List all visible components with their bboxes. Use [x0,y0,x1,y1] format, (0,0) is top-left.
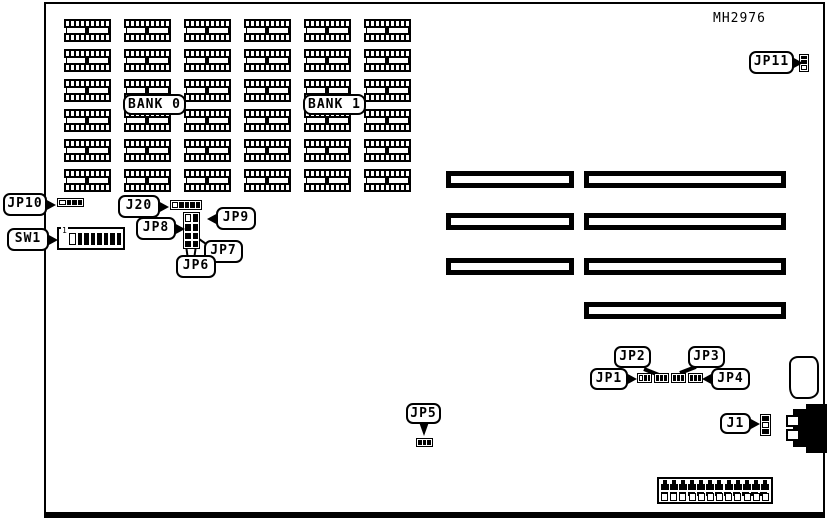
jp2-label: JP2 [619,349,645,364]
chip-body-bar [247,58,265,63]
expansion-slot [446,258,574,275]
pin-cell [59,200,66,205]
chip-notch-icon [304,148,306,153]
chip-notch-icon [184,178,186,183]
jp1-callout: JP1 [590,368,628,390]
chip-notch-icon [364,58,366,63]
power-cell [716,493,723,501]
chip-body-bar [247,178,265,183]
pin-cell [185,233,191,239]
chip-body-bar [149,58,168,63]
power-pin [670,480,678,491]
sw1-switch-cell [69,233,76,245]
chip-pin-row-icon [246,95,289,100]
memory-chip [184,19,231,42]
chip-body-bar [269,148,288,153]
chip-pin-row-icon [126,185,169,190]
power-pin [706,480,714,491]
memory-chip [124,19,171,42]
chip-body-bar [269,178,288,183]
chip-notch-icon [124,58,126,63]
chip-notch-icon [304,118,306,123]
chip-body-bar [269,88,288,93]
chip-body-bar [367,178,385,183]
chip-body-bar [67,28,85,33]
chip-notch-icon [124,148,126,153]
chip-body-bar [209,88,228,93]
chip-body-bar [149,88,168,93]
chip-body-bar [187,88,205,93]
chip-notch-icon [64,58,66,63]
chip-body-bar [89,178,108,183]
memory-chip [64,169,111,192]
power-pin [743,480,751,491]
chip-notch-icon [64,148,66,153]
chip-body-bar [247,118,265,123]
chip-body-bar [67,178,85,183]
j20-callout: J20 [118,195,160,218]
sw1-pointer-icon [47,234,58,246]
motherboard-diagram: BANK 0 BANK 1 MH2976 JP10 SW1 J20 JP8 JP… [0,0,827,520]
expansion-slot [446,213,574,230]
memory-chip [64,19,111,42]
pin-cell [185,224,191,230]
chip-body-bar [367,118,385,123]
memory-chip [304,139,351,162]
memory-chip [244,79,291,102]
pin-cell [193,224,199,230]
pin-cell [762,429,769,434]
chip-pin-row-icon [126,141,169,146]
pin-cell [656,375,659,381]
chip-pin-row-icon [66,111,109,116]
sw1-switch-cell [117,233,122,245]
chip-pin-row-icon [66,155,109,160]
memory-chip [304,49,351,72]
chip-notch-icon [184,58,186,63]
chip-pin-row-icon [246,155,289,160]
power-cell [670,493,677,501]
pin-cell [67,200,72,205]
jp10-header [57,198,84,207]
chip-body-bar [67,148,85,153]
chip-pin-row-icon [366,171,409,176]
chip-pin-row-icon [66,185,109,190]
sw1-switch-cell [104,233,109,245]
memory-chip [364,49,411,72]
jp8-callout: JP8 [136,217,176,240]
chip-notch-icon [364,148,366,153]
memory-chip [64,109,111,132]
chip-notch-icon [64,118,66,123]
memory-chip [364,109,411,132]
jp4-callout: JP4 [711,368,750,390]
jp9-label: JP9 [223,210,249,225]
jp1-label: JP1 [596,371,622,386]
chip-pin-row-icon [366,51,409,56]
chip-notch-icon [304,28,306,33]
j1-pointer-icon [749,418,760,430]
chip-pin-row-icon [126,35,169,40]
chip-notch-icon [304,58,306,63]
pin-cell [190,202,194,208]
chip-body-bar [89,148,108,153]
pin-cell [72,200,77,205]
chip-body-bar [209,58,228,63]
chip-notch-icon [244,118,246,123]
power-cell [679,493,686,501]
jp1-jumper [637,373,652,383]
keyboard-din-connector [806,404,827,453]
chip-pin-row-icon [126,21,169,26]
chip-body-bar [247,88,265,93]
chip-body-bar [127,178,145,183]
memory-chip [184,49,231,72]
power-pin [752,480,760,491]
expansion-slot [584,302,786,319]
jp11-callout: JP11 [749,51,794,74]
power-pin [725,480,733,491]
memory-chip [64,49,111,72]
chip-body-bar [389,148,408,153]
chip-pin-row-icon [126,125,169,130]
chip-body-bar [329,58,348,63]
chip-notch-icon [124,28,126,33]
chip-body-bar [307,148,325,153]
chip-body-bar [329,88,348,93]
chip-pin-row-icon [186,155,229,160]
power-pin [688,480,696,491]
power-cell [707,493,714,501]
power-pin [697,480,705,491]
power-cell [661,493,668,501]
power-cell [734,493,741,501]
chip-body-bar [307,28,325,33]
memory-chip [124,49,171,72]
chip-pin-row-icon [66,21,109,26]
chip-pin-row-icon [306,81,349,86]
memory-chip [184,139,231,162]
chip-body-bar [329,28,348,33]
chip-pin-row-icon [366,125,409,130]
chip-pin-row-icon [66,35,109,40]
chip-pin-row-icon [246,111,289,116]
chip-pin-row-icon [306,51,349,56]
jp2-jumper [654,373,669,383]
chip-pin-row-icon [186,81,229,86]
chip-pin-row-icon [186,65,229,70]
chip-pin-row-icon [246,125,289,130]
jp5-callout: JP5 [406,403,441,424]
chip-pin-row-icon [366,185,409,190]
chip-body-bar [269,118,288,123]
pin-cell [193,241,199,247]
memory-chip [124,169,171,192]
sw1-dip-switch: 1 [57,227,125,250]
j1-header [760,414,771,436]
chip-body-bar [307,88,325,93]
chip-body-bar [367,28,385,33]
power-pin [761,480,769,491]
memory-chip [364,169,411,192]
power-cell [762,493,769,501]
j1-label: J1 [727,416,745,431]
j20-header [170,200,202,210]
chip-pin-row-icon [246,81,289,86]
chip-body-bar [187,148,205,153]
chip-pin-row-icon [186,95,229,100]
jp6-callout: JP6 [176,255,216,278]
chip-pin-row-icon [126,51,169,56]
pin-cell [660,375,663,381]
power-connector-cell-row [661,493,769,501]
power-pin [679,480,687,491]
jp3-label: JP3 [693,349,719,364]
pin-cell [648,375,650,381]
sw1-switch-cell [84,233,89,245]
keyboard-din-pin [786,429,800,441]
bank0-label: BANK 0 [123,94,186,115]
chip-pin-row-icon [306,185,349,190]
chip-notch-icon [364,28,366,33]
chip-pin-row-icon [186,141,229,146]
expansion-slot [584,213,786,230]
jp10-label: JP10 [7,196,42,211]
chip-body-bar [209,178,228,183]
chip-pin-row-icon [366,95,409,100]
chip-pin-row-icon [366,21,409,26]
bank1-label: BANK 1 [303,94,366,115]
power-pin [734,480,742,491]
chip-body-bar [127,148,145,153]
chip-notch-icon [244,178,246,183]
chip-pin-row-icon [66,95,109,100]
jp4-jumper [688,373,703,383]
sw1-switch-cell [78,233,83,245]
j20-pointer-icon [158,201,169,213]
chip-body-bar [127,58,145,63]
memory-chip [244,19,291,42]
chip-body-bar [209,148,228,153]
memory-chip [244,49,291,72]
pin-cell [694,375,697,381]
expansion-slot [446,171,574,188]
jp7-label: JP7 [210,243,236,258]
pin-cell [172,202,178,208]
pin-cell [644,375,646,381]
chip-body-bar [187,178,205,183]
pin-cell [193,233,199,239]
chip-body-bar [67,118,85,123]
chip-pin-row-icon [246,141,289,146]
jp1-pointer-icon [626,373,637,385]
chip-body-bar [209,118,228,123]
jp4-label: JP4 [717,371,743,386]
expansion-slot [584,258,786,275]
chip-pin-row-icon [306,171,349,176]
memory-chip [304,19,351,42]
power-pin [661,480,669,491]
sw1-index-label: 1 [61,227,68,235]
chip-notch-icon [124,118,126,123]
chip-pin-row-icon [186,171,229,176]
sw1-label: SW1 [15,231,41,246]
memory-chip [184,79,231,102]
chip-pin-row-icon [246,185,289,190]
chip-notch-icon [184,88,186,93]
chip-pin-row-icon [66,81,109,86]
memory-chip [364,19,411,42]
chip-body-bar [269,58,288,63]
chip-pin-row-icon [126,81,169,86]
chip-body-bar [389,28,408,33]
j20-label: J20 [126,198,152,213]
pin-cell [418,440,422,445]
power-cell [744,493,751,501]
jp9-pointer-icon [207,213,218,225]
chip-pin-row-icon [366,65,409,70]
pin-cell [664,375,667,381]
chip-pin-row-icon [306,125,349,130]
chip-notch-icon [304,178,306,183]
memory-chip [244,109,291,132]
memory-chip [364,139,411,162]
pin-cell [690,375,693,381]
chip-body-bar [187,118,205,123]
chip-pin-row-icon [306,65,349,70]
chip-pin-row-icon [246,35,289,40]
chip-body-bar [329,178,348,183]
chip-pin-row-icon [366,111,409,116]
chip-pin-row-icon [66,51,109,56]
chip-body-bar [389,118,408,123]
chip-pin-row-icon [366,141,409,146]
chip-body-bar [389,88,408,93]
memory-chip [244,169,291,192]
chip-notch-icon [244,88,246,93]
chip-body-bar [367,148,385,153]
memory-chip [184,169,231,192]
jp8-jumper-block [183,212,200,249]
chip-notch-icon [244,28,246,33]
chip-pin-row-icon [66,141,109,146]
power-pin [715,480,723,491]
pin-cell [193,214,199,222]
chip-body-bar [367,88,385,93]
keyboard-din-pin [786,415,800,427]
chip-body-bar [127,88,145,93]
chip-body-bar [307,118,325,123]
chip-body-bar [149,28,168,33]
chip-pin-row-icon [366,35,409,40]
pin-cell [673,375,676,381]
memory-chip [304,169,351,192]
memory-chip [364,79,411,102]
chip-pin-row-icon [366,155,409,160]
chip-body-bar [187,58,205,63]
jp5-label: JP5 [410,406,436,421]
jp8-pointer-icon [174,223,185,235]
pin-cell [762,422,769,429]
jp10-callout: JP10 [3,193,47,216]
pin-cell [639,375,643,381]
chip-notch-icon [184,28,186,33]
chip-pin-row-icon [126,171,169,176]
chip-body-bar [89,28,108,33]
j1-callout: J1 [720,413,751,434]
jp6-label: JP6 [183,258,209,273]
chip-body-bar [149,178,168,183]
pin-cell [677,375,680,381]
chip-notch-icon [244,58,246,63]
pin-cell [78,200,83,205]
sw1-switch-cells [69,233,121,245]
chip-body-bar [307,178,325,183]
chip-notch-icon [124,178,126,183]
chip-pin-row-icon [66,65,109,70]
chip-body-bar [329,148,348,153]
chip-notch-icon [364,118,366,123]
chip-body-bar [149,148,168,153]
chip-pin-row-icon [306,155,349,160]
chip-body-bar [89,118,108,123]
chip-body-bar [307,58,325,63]
keyboard-connector-outline [789,356,819,399]
expansion-slot [584,171,786,188]
chip-pin-row-icon [66,171,109,176]
pin-cell [185,214,191,222]
part-number-text: MH2976 [713,11,766,26]
chip-pin-row-icon [186,35,229,40]
jp4-pointer-icon [702,373,713,385]
chip-pin-row-icon [246,51,289,56]
chip-body-bar [329,118,348,123]
jp9-callout: JP9 [216,207,256,230]
sw1-switch-cell [91,233,96,245]
sw1-callout: SW1 [7,228,49,251]
chip-pin-row-icon [186,125,229,130]
jp5-jumper [416,438,433,447]
chip-notch-icon [184,148,186,153]
power-cell [725,493,732,501]
chip-notch-icon [364,88,366,93]
chip-notch-icon [184,118,186,123]
chip-notch-icon [64,28,66,33]
chip-body-bar [269,28,288,33]
power-cell [689,493,696,501]
jp5-pointer-icon [419,422,429,436]
chip-notch-icon [304,88,306,93]
jp3-jumper [671,373,686,383]
power-connector-pin-row [661,480,769,491]
chip-body-bar [247,148,265,153]
jp3-callout: JP3 [688,346,725,368]
pin-cell [179,202,183,208]
memory-chip [124,139,171,162]
chip-pin-row-icon [306,21,349,26]
pin-cell [423,440,427,445]
jp11-pointer-icon [792,57,803,69]
chip-body-bar [127,118,145,123]
memory-chip [64,79,111,102]
power-cell [698,493,705,501]
chip-body-bar [389,58,408,63]
pin-cell [698,375,701,381]
power-connector [657,477,773,504]
pin-cell [427,440,431,445]
pin-cell [681,375,684,381]
chip-body-bar [149,118,168,123]
